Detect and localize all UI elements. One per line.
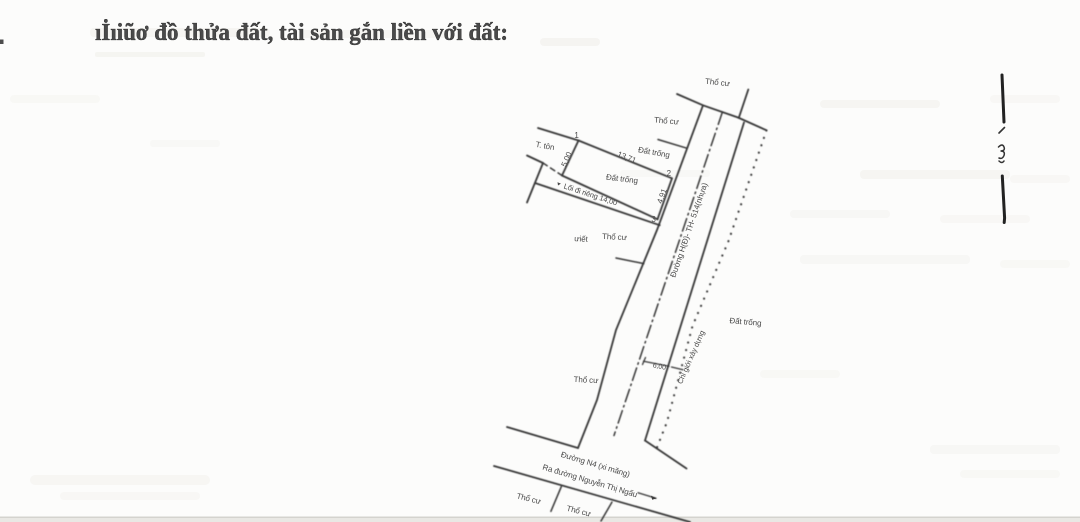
svg-text:2: 2 [667, 169, 672, 178]
svg-text:ưiết: ưiết [574, 234, 589, 244]
svg-text:Thổ cư: Thổ cư [602, 232, 628, 242]
svg-text:3: 3 [651, 215, 656, 224]
svg-text:Thổ cư: Thổ cư [573, 375, 599, 385]
svg-text:1: 1 [574, 131, 579, 140]
svg-text:ıİıiũơ đồ thửa đất, tài sản gắ: ıİıiũơ đồ thửa đất, tài sản gắn liền với… [95, 20, 508, 46]
